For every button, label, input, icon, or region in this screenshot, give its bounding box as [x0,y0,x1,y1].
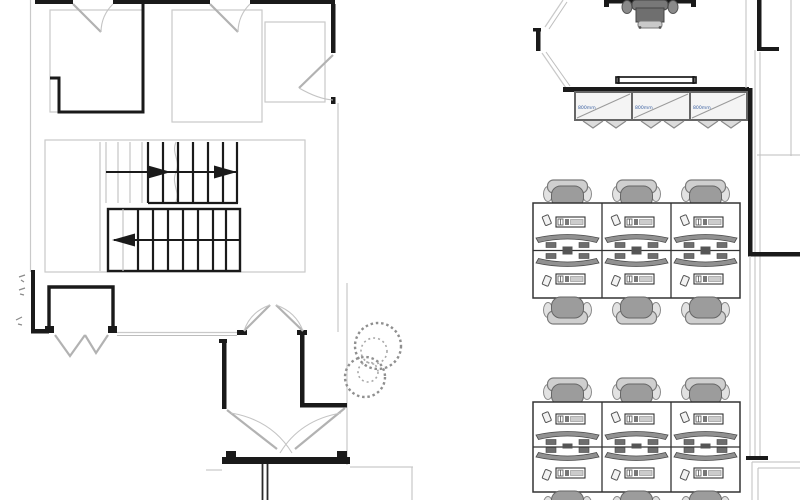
office-area: 800mm 800mm 800mm [533,0,800,500]
cabinet-dimension-label: 800mm [578,105,596,111]
wall [31,270,35,333]
cabinet-dimension-label: 800mm [693,105,711,111]
room-outline [265,22,325,102]
stair-flight-down [108,209,240,271]
stair-arrow-right [148,166,171,179]
room-top-left [50,4,143,112]
room-top-middle [172,4,262,122]
wall [222,457,350,464]
cabinet-1: 800mm [575,92,632,128]
chair [613,297,661,324]
wall [50,4,143,112]
wall [35,0,73,4]
bay-wall [533,0,570,88]
door-swing-arc [299,88,333,100]
wall [331,4,336,53]
door-leaf [227,410,277,449]
floor-plan-drawing: 800mm 800mm 800mm [0,0,800,500]
door-leaf [299,55,333,88]
wall [337,451,347,458]
tree-symbol [345,323,401,397]
cabinet-3: 800mm [690,92,747,128]
desk-bank-1 [533,180,740,324]
cabinet-dimension-label: 800mm [635,105,653,111]
stair-room-outline [45,140,305,272]
room-top-right [265,22,333,102]
wall [250,0,335,4]
door-leaf [210,4,238,32]
door-leaf [73,4,101,32]
door-swing-arc [238,4,250,32]
door-swing-arc [101,4,113,32]
left-building [16,0,413,500]
stair-arrow-right [214,166,237,179]
chair [682,378,730,405]
room-outline [172,10,262,122]
room-outline [50,10,143,112]
cabinet-2: 800mm [632,92,690,128]
dimension-marks [16,275,25,325]
staircase [45,140,305,272]
chair [544,378,592,405]
entrance-lobby [206,333,413,500]
chair [613,378,661,405]
entrance-alcove [31,287,117,356]
floor-plan-canvas: 800mm 800mm 800mm [0,0,800,500]
right-walls [746,0,800,500]
wall [331,97,336,104]
wall [226,451,236,458]
storage-cabinets: 800mm 800mm 800mm [575,92,747,128]
door-swing [85,335,108,353]
chair [682,297,730,324]
chair [544,297,592,324]
door-swing [55,335,85,356]
reception-chair [622,0,678,29]
corridor-double-door [244,305,303,331]
wall-shelf [616,76,696,84]
desk-bank-2 [533,378,740,500]
stair-flight-up [106,142,238,203]
wall [113,0,210,4]
